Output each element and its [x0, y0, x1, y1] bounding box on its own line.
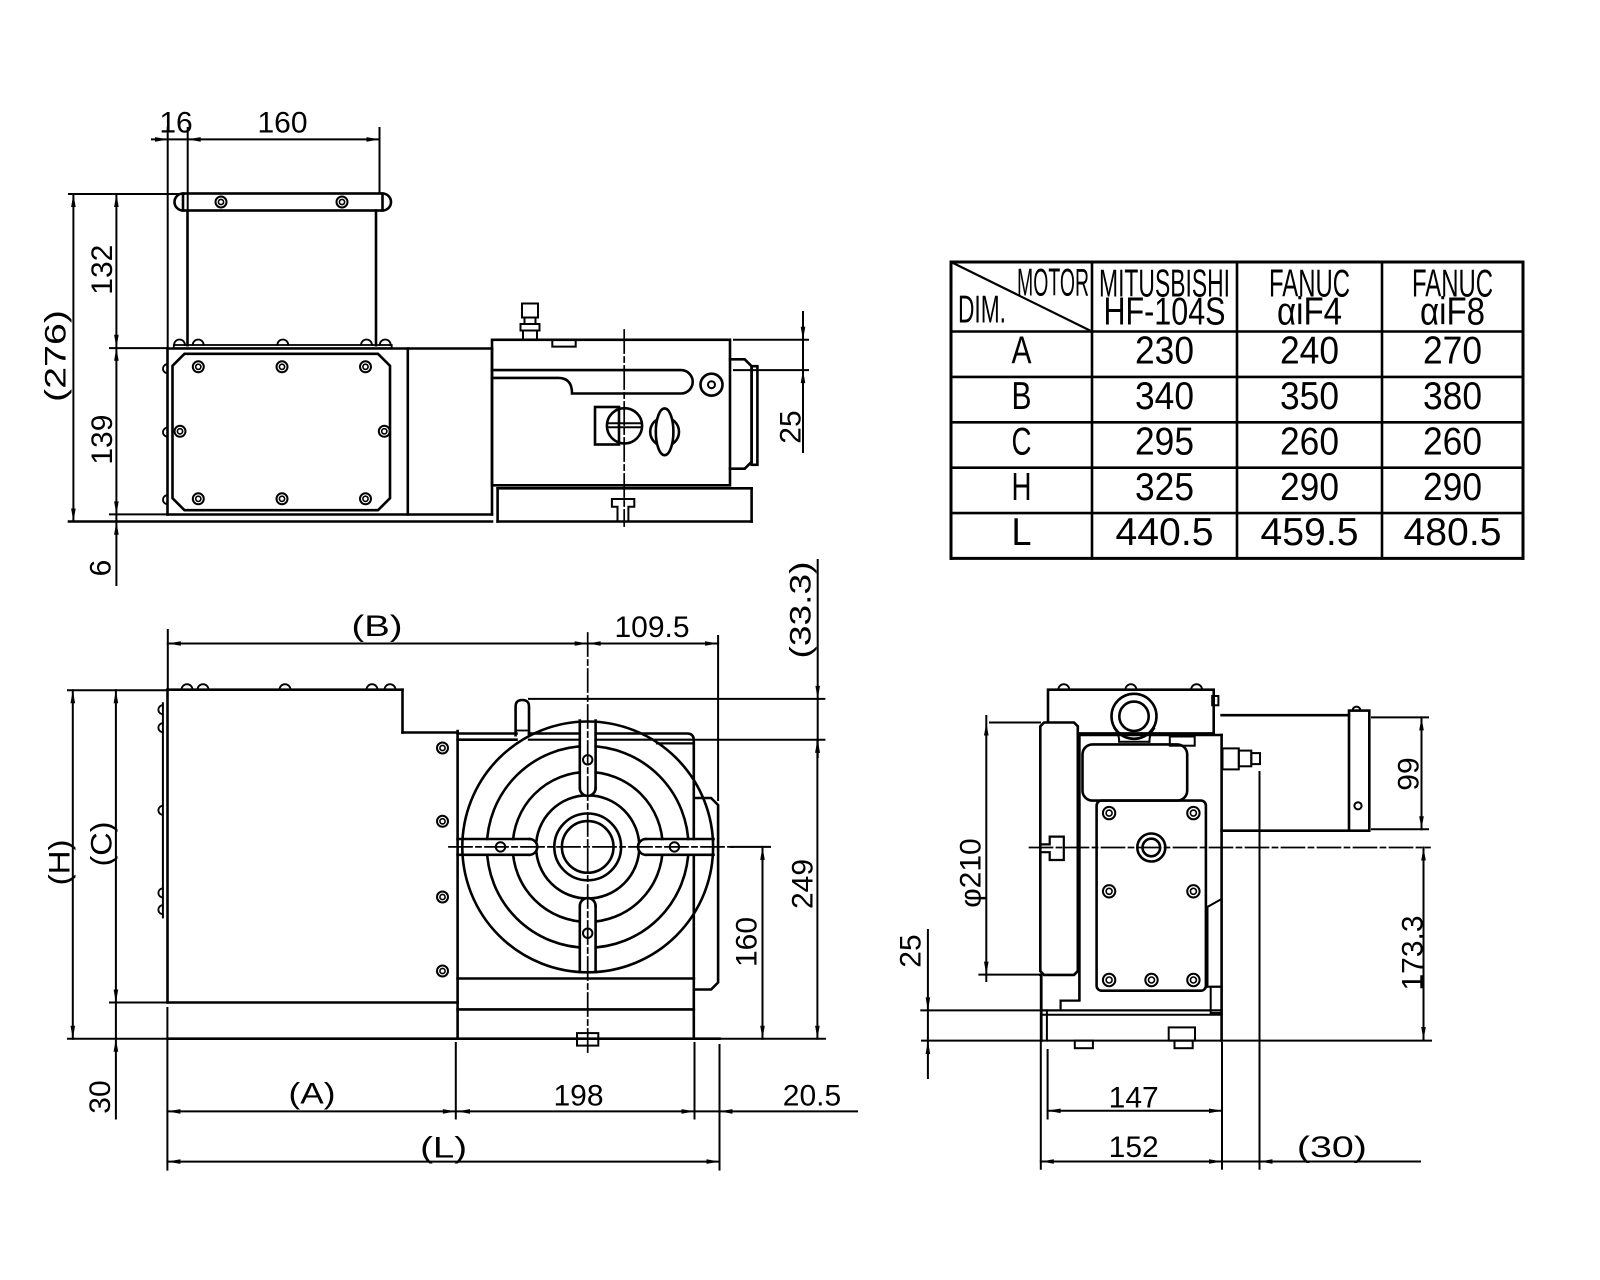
svg-text:132: 132	[86, 245, 119, 295]
svg-text:(33.3): (33.3)	[785, 562, 818, 659]
svg-text:249: 249	[787, 859, 820, 909]
svg-text:A: A	[1012, 330, 1032, 373]
svg-text:160: 160	[257, 107, 307, 140]
svg-text:152: 152	[1109, 1131, 1159, 1164]
svg-text:L: L	[1012, 511, 1032, 554]
svg-text:MOTOR: MOTOR	[1017, 262, 1089, 305]
svg-text:380: 380	[1423, 375, 1482, 418]
svg-text:440.5: 440.5	[1116, 511, 1214, 554]
svg-text:HF-104S: HF-104S	[1104, 291, 1226, 334]
svg-text:(30): (30)	[1297, 1131, 1367, 1164]
svg-text:(L): (L)	[420, 1131, 467, 1164]
svg-text:160: 160	[731, 917, 764, 967]
svg-text:173.3: 173.3	[1397, 915, 1430, 990]
svg-text:240: 240	[1280, 330, 1339, 373]
svg-text:25: 25	[775, 410, 808, 443]
svg-text:325: 325	[1135, 466, 1194, 509]
svg-text:99: 99	[1393, 757, 1426, 790]
svg-text:φ210: φ210	[955, 838, 988, 908]
svg-text:480.5: 480.5	[1404, 511, 1502, 554]
svg-text:αiF8: αiF8	[1420, 291, 1485, 334]
svg-text:25: 25	[895, 934, 928, 967]
svg-text:459.5: 459.5	[1261, 511, 1359, 554]
svg-text:260: 260	[1423, 421, 1482, 464]
svg-text:(H): (H)	[43, 839, 76, 885]
svg-text:147: 147	[1109, 1081, 1159, 1114]
svg-text:(B): (B)	[352, 610, 403, 643]
svg-text:139: 139	[86, 415, 119, 465]
svg-text:6: 6	[85, 560, 118, 577]
svg-text:DIM.: DIM.	[958, 289, 1006, 332]
svg-text:αiF4: αiF4	[1277, 291, 1342, 334]
svg-text:260: 260	[1280, 421, 1339, 464]
svg-text:198: 198	[553, 1080, 603, 1113]
svg-text:270: 270	[1423, 330, 1482, 373]
svg-text:30: 30	[84, 1080, 117, 1113]
svg-text:109.5: 109.5	[614, 611, 689, 644]
svg-text:(276): (276)	[40, 310, 73, 402]
svg-text:230: 230	[1135, 330, 1194, 373]
svg-text:290: 290	[1423, 466, 1482, 509]
svg-text:B: B	[1012, 375, 1032, 418]
svg-text:20.5: 20.5	[783, 1080, 841, 1113]
svg-text:(A): (A)	[289, 1078, 336, 1111]
svg-text:340: 340	[1135, 375, 1194, 418]
svg-text:H: H	[1012, 466, 1032, 509]
svg-text:350: 350	[1280, 375, 1339, 418]
svg-text:290: 290	[1280, 466, 1339, 509]
svg-text:(C): (C)	[86, 822, 119, 867]
svg-text:295: 295	[1135, 421, 1194, 464]
svg-text:C: C	[1012, 421, 1032, 464]
